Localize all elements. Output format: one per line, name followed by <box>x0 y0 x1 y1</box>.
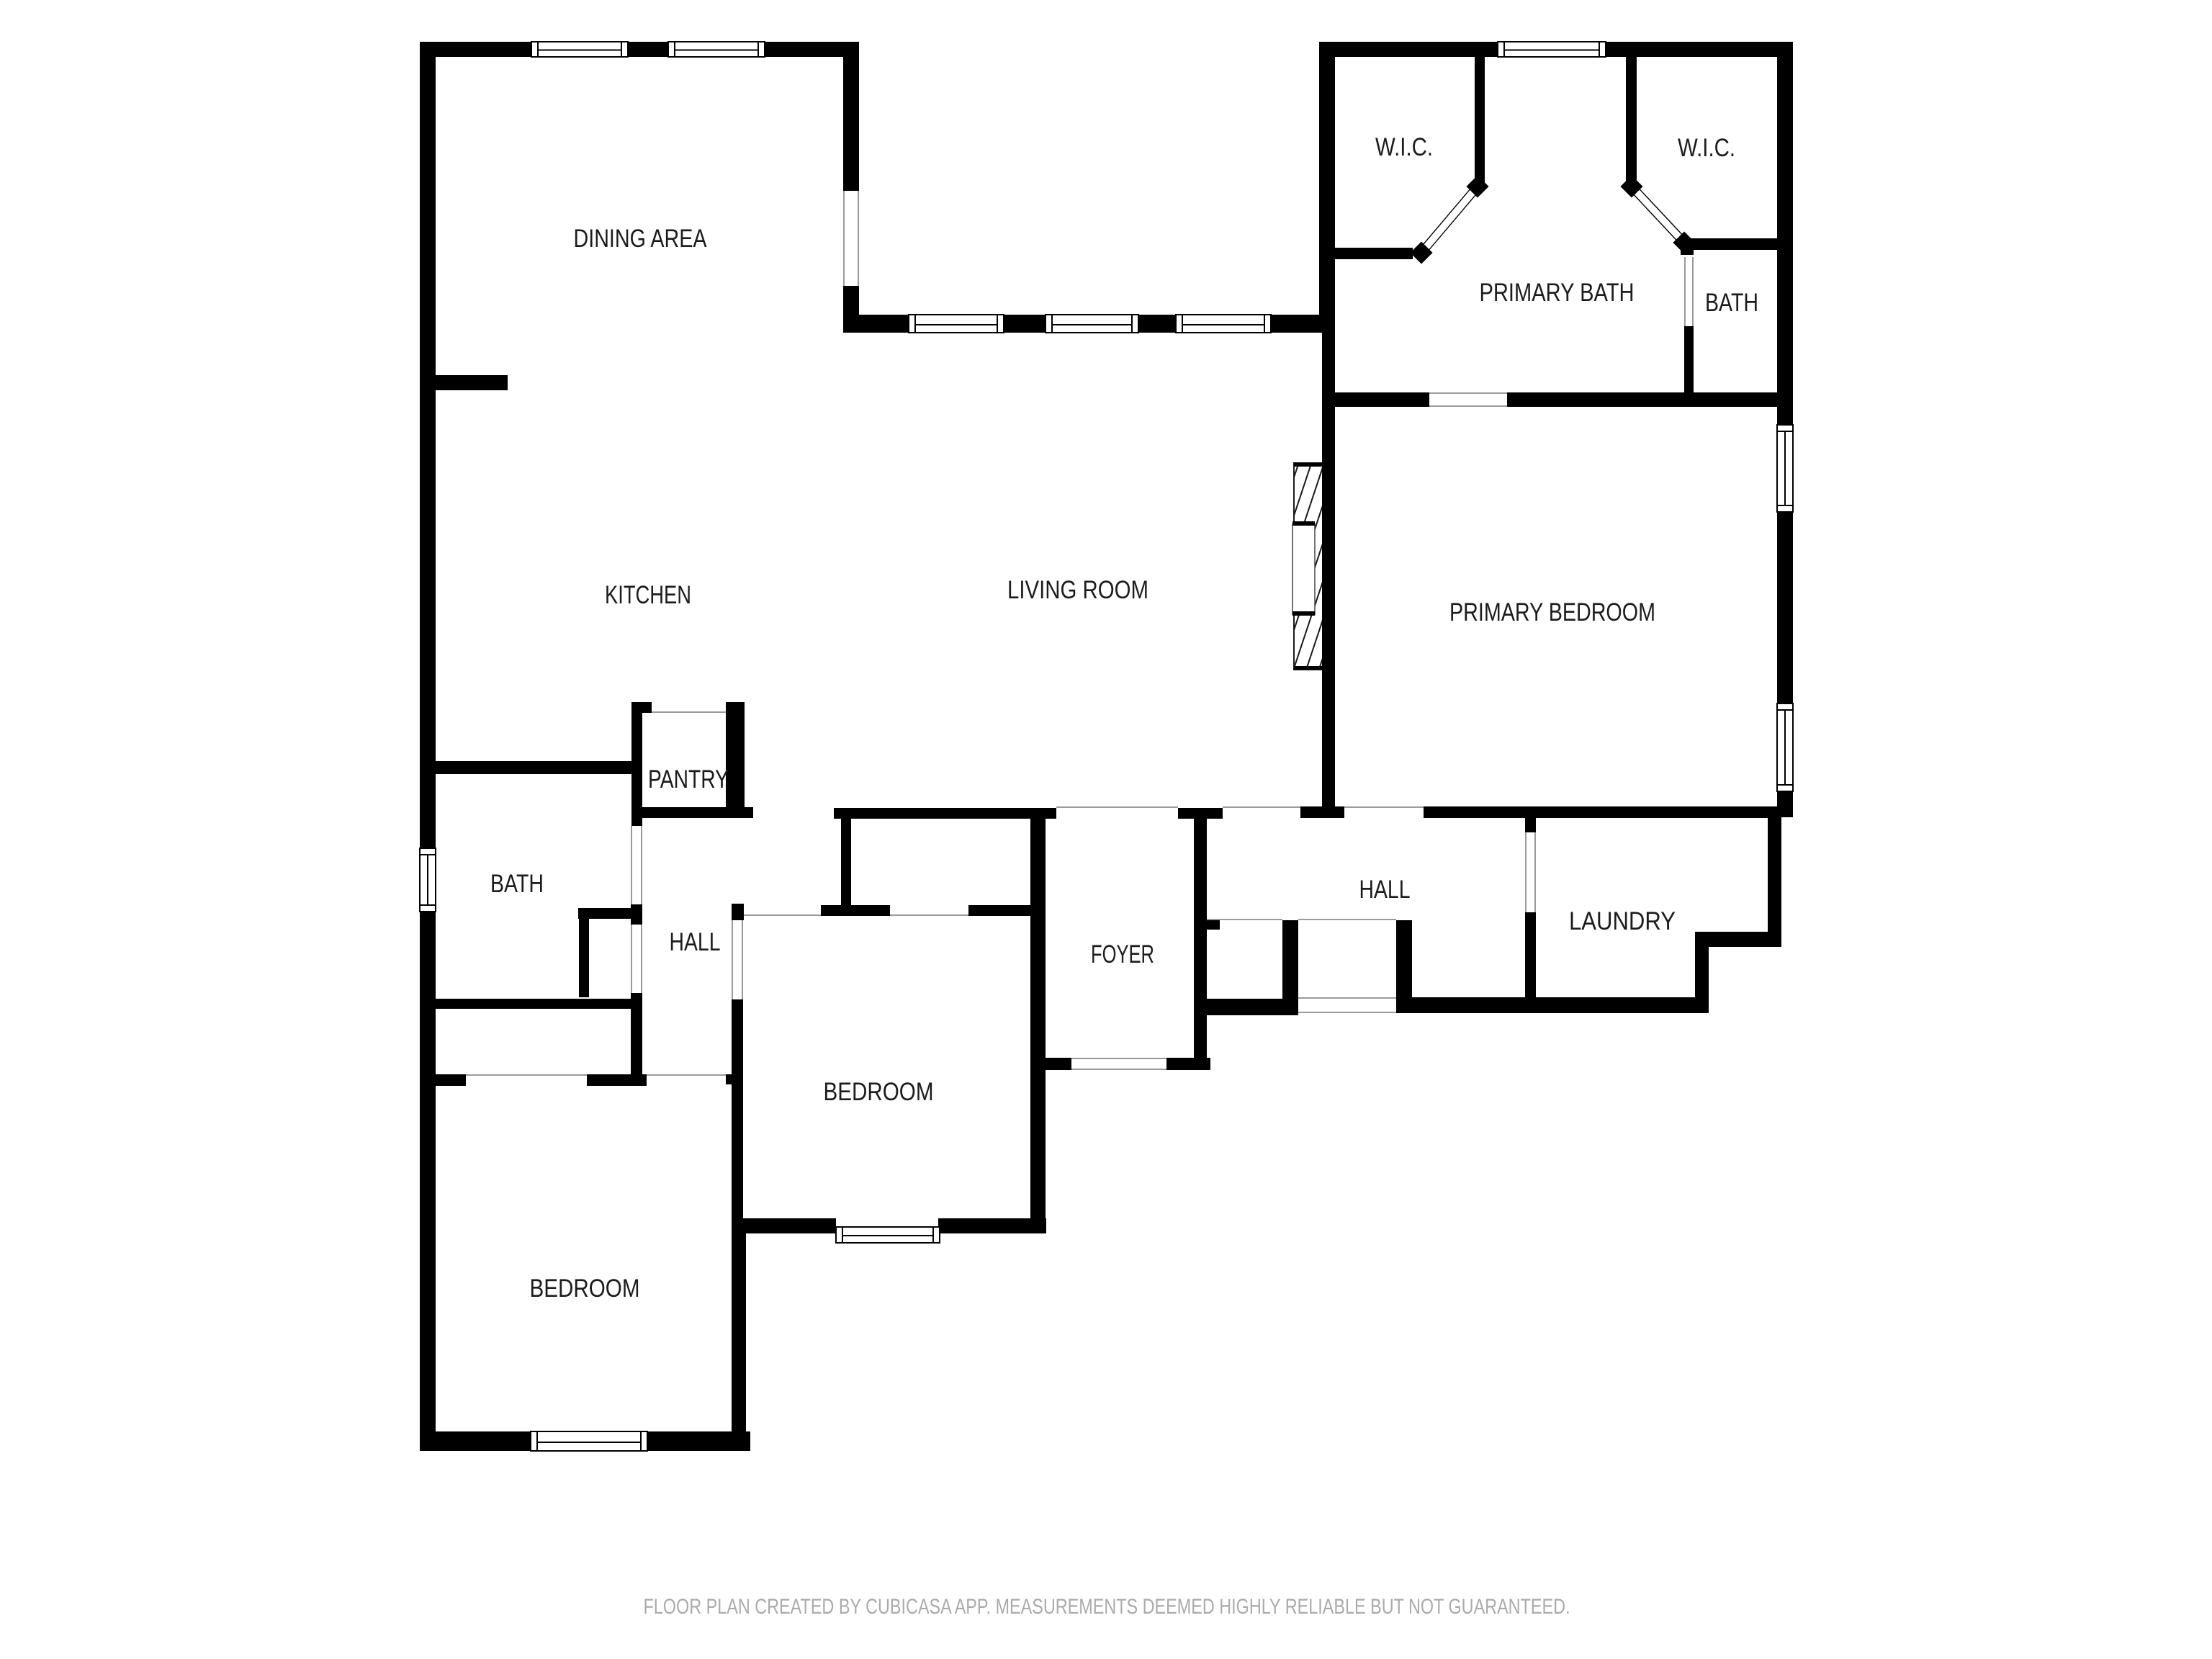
svg-text:W.I.C.: W.I.C. <box>1678 134 1735 162</box>
svg-text:LAUNDRY: LAUNDRY <box>1569 907 1676 935</box>
svg-text:KITCHEN: KITCHEN <box>605 581 691 609</box>
svg-text:HALL: HALL <box>1359 876 1411 904</box>
svg-text:LIVING ROOM: LIVING ROOM <box>1007 576 1148 604</box>
svg-text:FOYER: FOYER <box>1091 940 1154 968</box>
svg-text:BEDROOM: BEDROOM <box>530 1274 640 1303</box>
svg-text:DINING AREA: DINING AREA <box>574 225 708 253</box>
svg-text:PANTRY: PANTRY <box>648 765 729 793</box>
svg-text:FLOOR PLAN CREATED BY CUBICASA: FLOOR PLAN CREATED BY CUBICASA APP. MEAS… <box>644 1595 1570 1619</box>
svg-text:BATH: BATH <box>490 870 544 898</box>
svg-text:PRIMARY BEDROOM: PRIMARY BEDROOM <box>1449 598 1655 626</box>
svg-text:PRIMARY BATH: PRIMARY BATH <box>1480 279 1635 307</box>
svg-text:HALL: HALL <box>670 928 721 956</box>
svg-text:BATH: BATH <box>1705 289 1758 317</box>
svg-text:BEDROOM: BEDROOM <box>824 1078 934 1106</box>
svg-text:W.I.C.: W.I.C. <box>1375 133 1433 161</box>
